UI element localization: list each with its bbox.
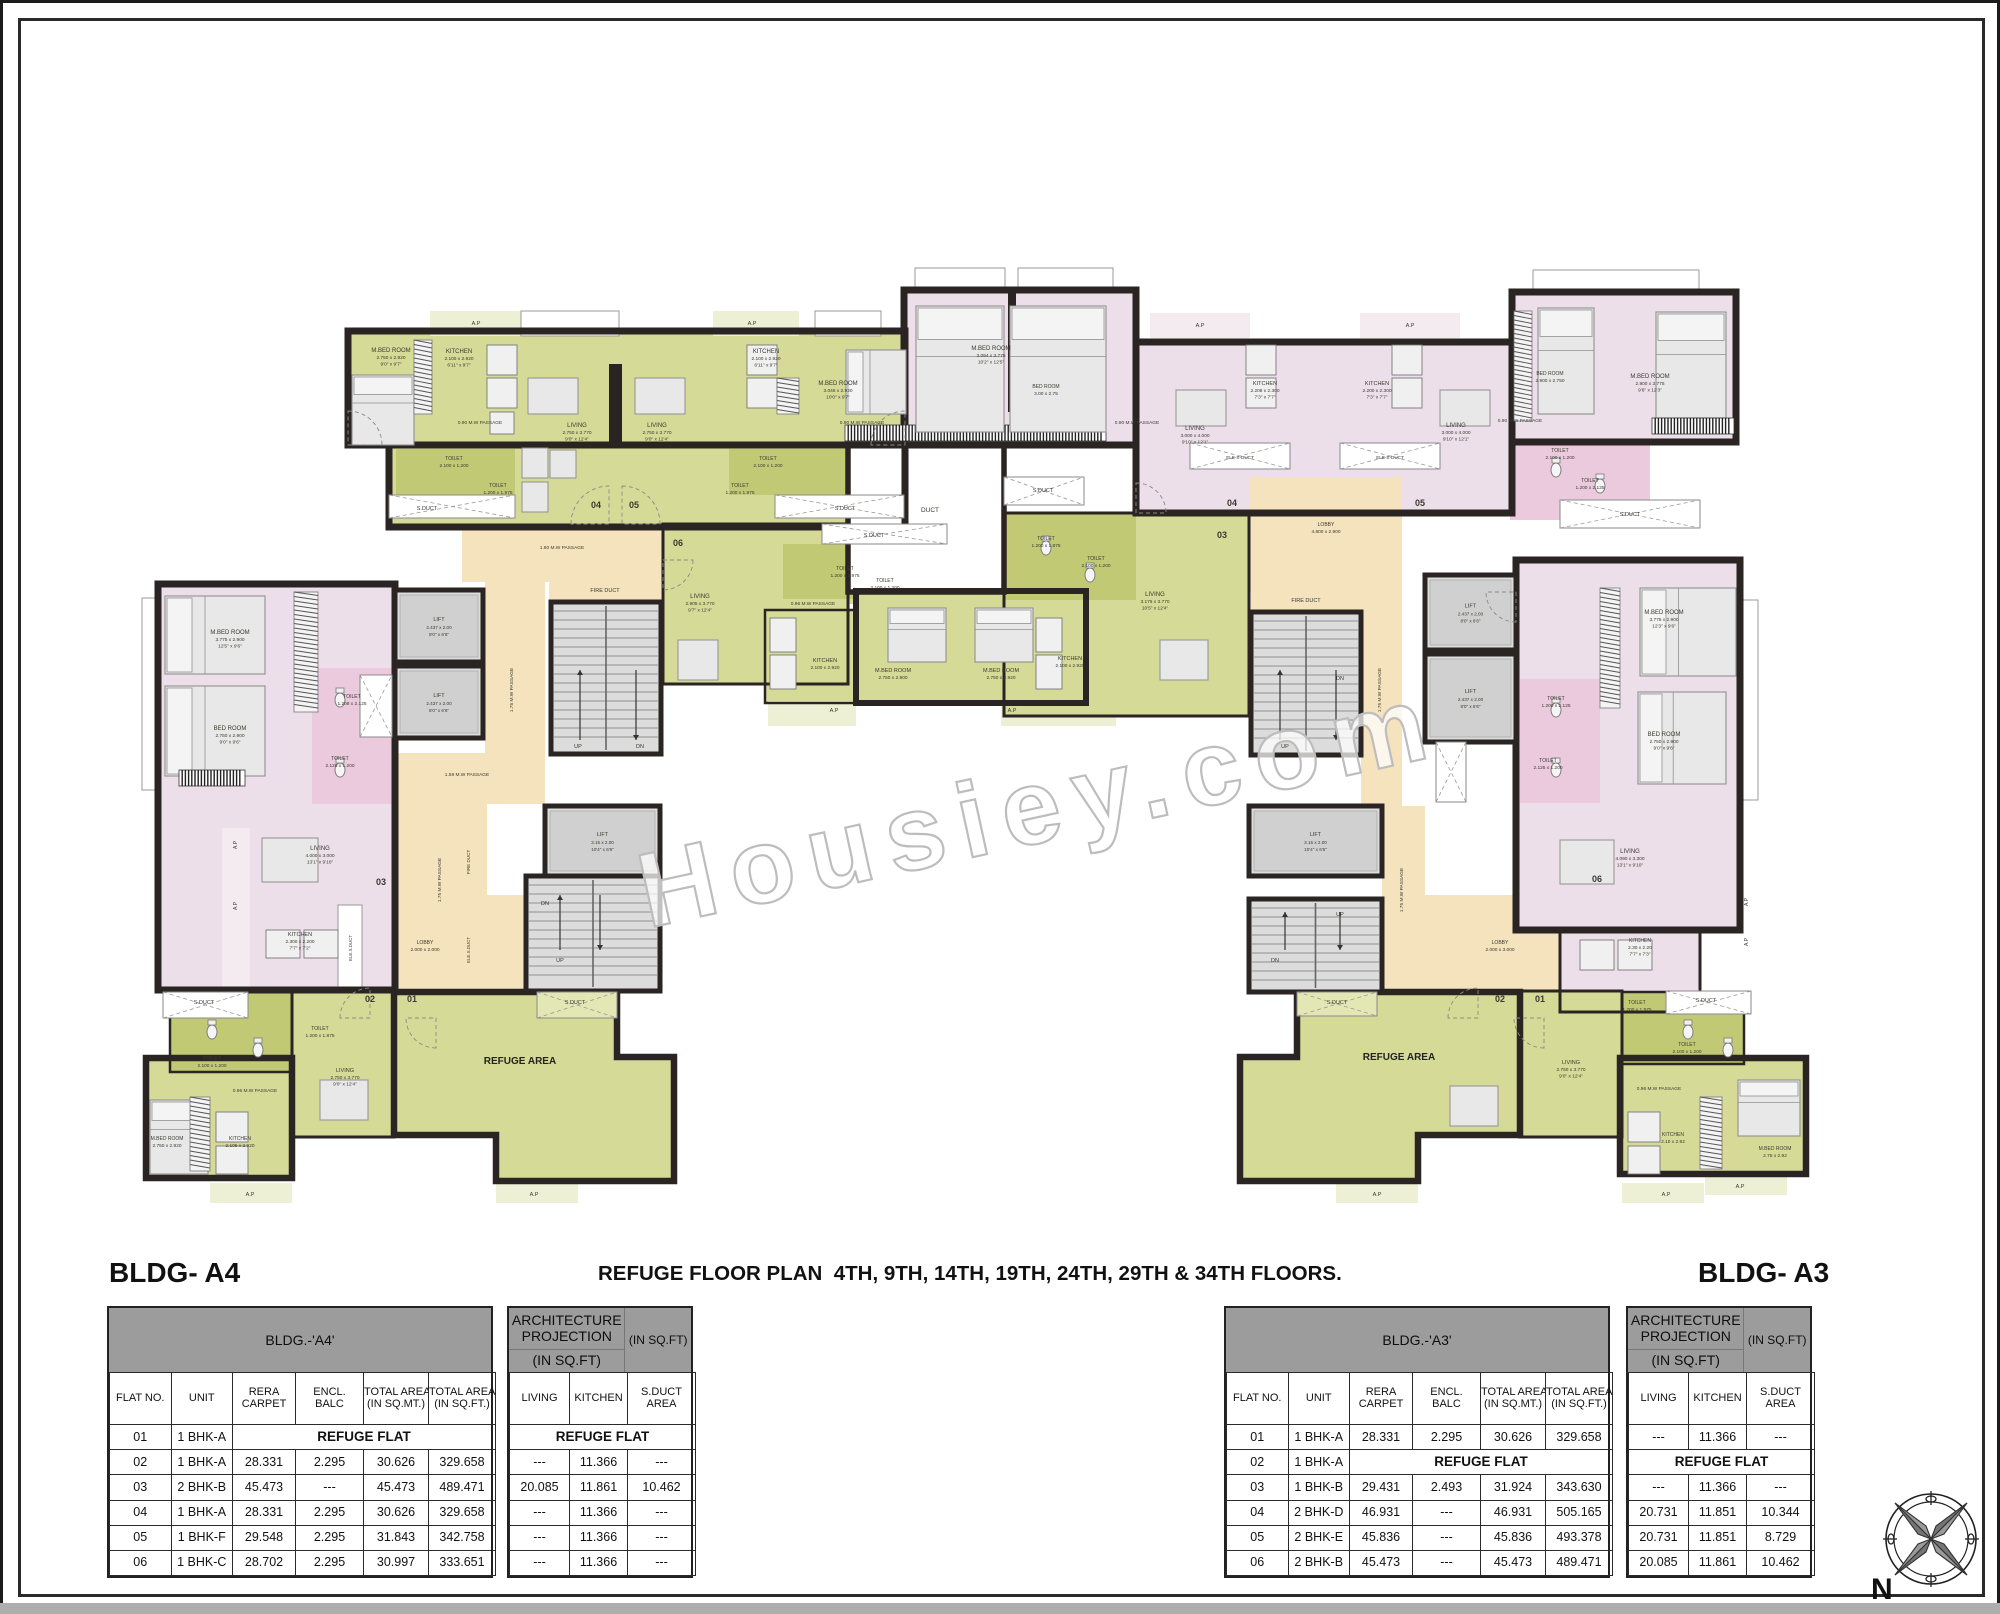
svg-text:8'0" x 6'6": 8'0" x 6'6" <box>429 632 449 637</box>
svg-text:9'6" x 12'3": 9'6" x 12'3" <box>1638 388 1662 394</box>
svg-text:3.775 x 2.900: 3.775 x 2.900 <box>215 637 244 643</box>
svg-text:0.90 M.W PASSAGE: 0.90 M.W PASSAGE <box>1498 418 1542 424</box>
svg-text:7'3" x 7'7": 7'3" x 7'7" <box>1367 395 1388 401</box>
svg-text:M.BED ROOM: M.BED ROOM <box>818 381 857 387</box>
svg-text:LIVING: LIVING <box>647 423 667 429</box>
svg-text:2.100 x 1.200: 2.100 x 1.200 <box>439 463 468 469</box>
svg-text:06: 06 <box>673 538 683 548</box>
svg-text:LIFT: LIFT <box>433 693 445 699</box>
svg-text:3.175 x 3.770: 3.175 x 3.770 <box>1140 599 1169 605</box>
svg-text:UP: UP <box>1336 912 1344 918</box>
svg-text:TOILET: TOILET <box>311 1026 328 1032</box>
svg-text:3.046 x 2.920: 3.046 x 2.920 <box>823 388 852 394</box>
svg-text:2.437 x 2.00: 2.437 x 2.00 <box>1458 612 1484 617</box>
svg-text:2.100 x 1.200: 2.100 x 1.200 <box>870 585 899 591</box>
svg-text:9'0" x 12'4": 9'0" x 12'4" <box>1559 1074 1583 1080</box>
svg-text:1.75 M.W PASSAGE: 1.75 M.W PASSAGE <box>509 668 515 712</box>
svg-text:LIVING: LIVING <box>1446 423 1466 429</box>
svg-text:9'10" x 12'1": 9'10" x 12'1" <box>1443 437 1470 443</box>
svg-text:0.90 M.W PASSAGE: 0.90 M.W PASSAGE <box>1115 420 1159 426</box>
svg-text:2.100 x 2.920: 2.100 x 2.920 <box>751 356 780 362</box>
svg-text:2.100 x 2.920: 2.100 x 2.920 <box>1055 663 1084 669</box>
svg-text:2.750 x 3.770: 2.750 x 3.770 <box>1556 1067 1585 1073</box>
svg-text:2.208 x 2.300: 2.208 x 2.300 <box>1250 388 1279 394</box>
svg-text:1.75 M.W PASSAGE: 1.75 M.W PASSAGE <box>1399 868 1405 912</box>
svg-text:DN: DN <box>541 901 549 907</box>
svg-text:FIRE DUCT: FIRE DUCT <box>590 588 620 594</box>
svg-text:LIVING: LIVING <box>1145 592 1165 598</box>
svg-text:2.000 x 2.000: 2.000 x 2.000 <box>410 947 439 953</box>
svg-text:S.DUCT: S.DUCT <box>864 533 885 539</box>
svg-text:KITCHEN: KITCHEN <box>813 658 837 664</box>
svg-text:A.P: A.P <box>1736 1184 1745 1190</box>
svg-text:S.DUCT: S.DUCT <box>194 1000 215 1006</box>
svg-text:10'5" x 12'4": 10'5" x 12'4" <box>1142 606 1169 612</box>
svg-text:6'11" x 9'7": 6'11" x 9'7" <box>754 363 778 369</box>
svg-text:2.100 x 1.200: 2.100 x 1.200 <box>753 463 782 469</box>
svg-text:6'11" x 9'7": 6'11" x 9'7" <box>447 363 471 369</box>
svg-text:3.00 x 2.75: 3.00 x 2.75 <box>1034 391 1058 397</box>
svg-text:9'0" x 9'6": 9'0" x 9'6" <box>1654 746 1675 752</box>
svg-text:LIVING: LIVING <box>567 423 587 429</box>
svg-text:N: N <box>1871 1573 1893 1606</box>
svg-text:12'3" x 9'6": 12'3" x 9'6" <box>1652 624 1676 630</box>
svg-text:BED ROOM: BED ROOM <box>1536 371 1563 377</box>
svg-text:9'0" x 12'4": 9'0" x 12'4" <box>565 437 589 443</box>
svg-text:KITCHEN: KITCHEN <box>1662 1132 1684 1138</box>
svg-text:10'4" x 6'6": 10'4" x 6'6" <box>591 847 614 852</box>
svg-text:UP: UP <box>574 744 582 750</box>
svg-text:03: 03 <box>376 877 386 887</box>
svg-text:12'5" x 9'6": 12'5" x 9'6" <box>218 644 242 650</box>
svg-text:05: 05 <box>1415 498 1425 508</box>
svg-text:M.BED ROOM: M.BED ROOM <box>210 630 249 636</box>
svg-text:2.300 x 2.200: 2.300 x 2.200 <box>285 939 314 945</box>
svg-text:01: 01 <box>407 994 417 1004</box>
svg-text:UP: UP <box>556 958 564 964</box>
svg-text:A.P: A.P <box>1662 1192 1671 1198</box>
svg-text:10'4" x 6'6": 10'4" x 6'6" <box>1304 847 1327 852</box>
svg-text:TOILET: TOILET <box>1551 448 1568 454</box>
svg-text:9'0" x 9'7": 9'0" x 9'7" <box>381 362 402 368</box>
svg-text:TOILET: TOILET <box>1087 556 1104 562</box>
svg-text:A.P: A.P <box>1196 323 1205 329</box>
svg-text:2.100 x 1.200: 2.100 x 1.200 <box>197 1063 226 1069</box>
svg-text:S.DUCT: S.DUCT <box>565 1000 586 1006</box>
svg-text:9'7" x 12'4": 9'7" x 12'4" <box>688 608 712 614</box>
svg-text:A.P: A.P <box>1373 1192 1382 1198</box>
svg-text:0.96 M.W PASSAGE: 0.96 M.W PASSAGE <box>233 1088 277 1094</box>
svg-text:M.BED ROOM: M.BED ROOM <box>371 348 410 354</box>
svg-text:2.100 x 1.200: 2.100 x 1.200 <box>1545 455 1574 461</box>
svg-text:KITCHEN: KITCHEN <box>1365 381 1389 387</box>
svg-text:02: 02 <box>1495 994 1505 1004</box>
svg-text:2.125 x 1.200: 2.125 x 1.200 <box>325 763 354 769</box>
svg-text:2.437 x 2.00: 2.437 x 2.00 <box>426 701 452 706</box>
svg-text:05: 05 <box>629 500 639 510</box>
svg-text:A.P: A.P <box>1406 323 1415 329</box>
svg-text:2.000 x 3.000: 2.000 x 3.000 <box>1485 947 1514 953</box>
svg-text:2.750 x 2.920: 2.750 x 2.920 <box>376 355 405 361</box>
svg-text:04: 04 <box>1227 498 1237 508</box>
svg-text:9'10" x 12'1": 9'10" x 12'1" <box>1182 440 1209 446</box>
svg-text:8'0" x 6'6": 8'0" x 6'6" <box>1460 704 1480 709</box>
svg-text:TOILET: TOILET <box>489 483 506 489</box>
svg-text:TOILET: TOILET <box>1628 1000 1645 1006</box>
svg-text:TOILET: TOILET <box>759 456 776 462</box>
svg-text:M.BED ROOM: M.BED ROOM <box>1759 1146 1792 1152</box>
svg-text:REFUGE AREA: REFUGE AREA <box>484 1056 556 1067</box>
svg-text:2.105 x 2.920: 2.105 x 2.920 <box>225 1143 254 1149</box>
svg-text:S.DUCT: S.DUCT <box>1033 488 1054 494</box>
svg-text:ELE.S.DUCT: ELE.S.DUCT <box>348 935 353 961</box>
svg-text:LIFT: LIFT <box>1465 689 1477 695</box>
svg-text:1.200 x 1.875: 1.200 x 1.875 <box>305 1033 334 1039</box>
svg-text:2.437 x 2.00: 2.437 x 2.00 <box>1458 697 1484 702</box>
svg-text:TOILET: TOILET <box>445 456 462 462</box>
svg-text:TOILET: TOILET <box>836 566 853 572</box>
svg-text:M.BED ROOM: M.BED ROOM <box>1644 610 1683 616</box>
svg-text:LIFT: LIFT <box>597 832 609 838</box>
svg-text:A.P: A.P <box>233 840 239 849</box>
svg-text:1.75 M.W PASSAGE: 1.75 M.W PASSAGE <box>437 858 443 902</box>
svg-text:1.200 x 1.975: 1.200 x 1.975 <box>1622 1007 1651 1013</box>
svg-text:2.125 x 1.200: 2.125 x 1.200 <box>1533 765 1562 771</box>
svg-text:3.15 x 2.00: 3.15 x 2.00 <box>591 840 614 845</box>
svg-text:A.P: A.P <box>1008 708 1017 714</box>
svg-text:S.DUCT: S.DUCT <box>1327 1000 1348 1006</box>
svg-text:TOILET: TOILET <box>331 756 348 762</box>
svg-text:A.P: A.P <box>233 901 239 910</box>
svg-text:KITCHEN: KITCHEN <box>753 349 779 355</box>
svg-text:ELE-S-DUCT: ELE-S-DUCT <box>1226 455 1254 460</box>
svg-text:2.30 x 2.20: 2.30 x 2.20 <box>1628 945 1652 951</box>
svg-text:10'2" x 12'5": 10'2" x 12'5" <box>978 360 1005 366</box>
svg-text:2.750 x 3.770: 2.750 x 3.770 <box>642 430 671 436</box>
svg-text:LIVING: LIVING <box>336 1068 354 1074</box>
svg-text:TOILET: TOILET <box>876 578 893 584</box>
svg-text:ELE.S.DUCT: ELE.S.DUCT <box>466 937 471 963</box>
svg-text:8'0" x 6'6": 8'0" x 6'6" <box>429 708 449 713</box>
svg-text:LIVING: LIVING <box>1620 849 1640 855</box>
svg-text:TOILET: TOILET <box>1539 758 1556 764</box>
svg-text:KITCHEN: KITCHEN <box>229 1136 251 1142</box>
svg-text:BED ROOM: BED ROOM <box>1648 732 1681 738</box>
svg-text:A.P: A.P <box>246 1192 255 1198</box>
svg-text:1.200 x 2.125: 1.200 x 2.125 <box>1541 703 1570 709</box>
svg-text:3.775 x 2.900: 3.775 x 2.900 <box>1649 617 1678 623</box>
svg-text:DN: DN <box>636 744 644 750</box>
svg-text:1.200 x 1.975: 1.200 x 1.975 <box>830 573 859 579</box>
svg-text:3.000 x 4.000: 3.000 x 4.000 <box>1441 430 1470 436</box>
svg-text:2.100 x 1.200: 2.100 x 1.200 <box>1672 1049 1701 1055</box>
svg-text:DN: DN <box>1271 958 1279 964</box>
svg-text:A.P: A.P <box>748 321 757 327</box>
svg-text:LOBBY: LOBBY <box>1318 522 1335 528</box>
svg-text:BED ROOM: BED ROOM <box>1032 384 1059 390</box>
svg-text:2.750 x 3.770: 2.750 x 3.770 <box>562 430 591 436</box>
svg-text:TOILET: TOILET <box>1678 1042 1695 1048</box>
svg-text:FIRE DUCT: FIRE DUCT <box>1291 598 1321 604</box>
svg-text:02: 02 <box>365 994 375 1004</box>
svg-text:A.P: A.P <box>1744 937 1750 946</box>
svg-text:10'0" x 9'7": 10'0" x 9'7" <box>826 395 850 401</box>
svg-text:2.905 x 3.770: 2.905 x 3.770 <box>685 601 714 607</box>
svg-text:2.750 x 2.920: 2.750 x 2.920 <box>986 675 1015 681</box>
svg-text:1.200 x 1.875: 1.200 x 1.875 <box>1031 543 1060 549</box>
svg-text:KITCHEN: KITCHEN <box>446 349 472 355</box>
svg-text:2.900 x 3.775: 2.900 x 3.775 <box>1635 381 1664 387</box>
svg-text:9'0" x 12'4": 9'0" x 12'4" <box>645 437 669 443</box>
svg-text:TOILET: TOILET <box>1037 536 1054 542</box>
svg-text:DUCT: DUCT <box>921 507 939 514</box>
svg-text:2.100 x 2.920: 2.100 x 2.920 <box>810 665 839 671</box>
svg-text:13'1" x 9'10": 13'1" x 9'10" <box>307 860 334 866</box>
svg-text:A.P: A.P <box>830 708 839 714</box>
svg-text:S.DUCT: S.DUCT <box>1696 998 1717 1004</box>
svg-text:KITCHEN: KITCHEN <box>1058 656 1082 662</box>
svg-text:TOILET: TOILET <box>1547 696 1564 702</box>
svg-text:1.59 M.W PASSAGE: 1.59 M.W PASSAGE <box>445 772 489 778</box>
svg-text:2.10 x 2.92: 2.10 x 2.92 <box>1661 1139 1685 1145</box>
svg-text:04: 04 <box>591 500 601 510</box>
svg-text:0.96 M.W PASSAGE: 0.96 M.W PASSAGE <box>1637 1086 1681 1092</box>
svg-text:3.000 x 4.000: 3.000 x 4.000 <box>1180 433 1209 439</box>
svg-text:A.P: A.P <box>1744 897 1750 906</box>
svg-text:LIFT: LIFT <box>1465 604 1477 610</box>
svg-text:7'7" x 7'3": 7'7" x 7'3" <box>1630 952 1651 958</box>
svg-text:06: 06 <box>1592 874 1602 884</box>
svg-text:FIRE DUCT: FIRE DUCT <box>466 850 471 875</box>
svg-text:M.BED ROOM: M.BED ROOM <box>983 668 1019 674</box>
svg-text:1.208 x 2.125: 1.208 x 2.125 <box>337 701 366 707</box>
svg-text:M.BED ROOM: M.BED ROOM <box>875 668 911 674</box>
svg-text:S.DUCT: S.DUCT <box>417 506 438 512</box>
svg-text:0.90 M.W PASSAGE: 0.90 M.W PASSAGE <box>840 420 884 426</box>
svg-text:ELE-S-DUCT: ELE-S-DUCT <box>1376 455 1404 460</box>
svg-text:2.75 x 2.92: 2.75 x 2.92 <box>1763 1153 1787 1159</box>
svg-text:LIFT: LIFT <box>433 617 445 623</box>
svg-text:13'1" x 9'10": 13'1" x 9'10" <box>1617 863 1644 869</box>
svg-text:M.BED ROOM: M.BED ROOM <box>151 1136 184 1142</box>
svg-text:4.000 x 3.000: 4.000 x 3.000 <box>305 853 334 859</box>
svg-text:2.750 x 2.900: 2.750 x 2.900 <box>1649 739 1678 745</box>
svg-text:2.750 x 2.900: 2.750 x 2.900 <box>215 733 244 739</box>
svg-text:03: 03 <box>1217 530 1227 540</box>
svg-text:M.BED ROOM: M.BED ROOM <box>1630 374 1669 380</box>
svg-text:REFUGE AREA: REFUGE AREA <box>1363 1052 1435 1063</box>
svg-text:2.750 x 2.920: 2.750 x 2.920 <box>152 1143 181 1149</box>
svg-text:4.800 x 2.900: 4.800 x 2.900 <box>1311 529 1340 535</box>
svg-text:TOILET: TOILET <box>203 1056 220 1062</box>
svg-text:KITCHEN: KITCHEN <box>1629 938 1651 944</box>
svg-text:TOILET: TOILET <box>731 483 748 489</box>
svg-text:8'0" x 6'6": 8'0" x 6'6" <box>1460 619 1480 624</box>
svg-text:1.60 M.W PASSAGE: 1.60 M.W PASSAGE <box>540 545 584 551</box>
svg-text:LIVING: LIVING <box>690 594 710 600</box>
svg-text:M.BED ROOM: M.BED ROOM <box>971 346 1010 352</box>
svg-text:9'0" x 12'4": 9'0" x 12'4" <box>333 1082 357 1088</box>
svg-text:7'7" x 7'2": 7'7" x 7'2" <box>290 946 311 952</box>
svg-text:A.P: A.P <box>530 1192 539 1198</box>
svg-text:2.750 x 2.900: 2.750 x 2.900 <box>878 675 907 681</box>
svg-text:1.200 x 1.975: 1.200 x 1.975 <box>725 490 754 496</box>
svg-text:1.200 x 2.125: 1.200 x 2.125 <box>1575 485 1604 491</box>
svg-text:LIVING: LIVING <box>310 846 330 852</box>
svg-text:LOBBY: LOBBY <box>417 940 434 946</box>
svg-text:0.96 M.W PASSAGE: 0.96 M.W PASSAGE <box>791 601 835 607</box>
svg-text:01: 01 <box>1535 994 1545 1004</box>
svg-text:3.15 x 2.00: 3.15 x 2.00 <box>1304 840 1327 845</box>
svg-text:4.090 x 3.300: 4.090 x 3.300 <box>1615 856 1644 862</box>
svg-text:1.200 x 1.975: 1.200 x 1.975 <box>483 490 512 496</box>
svg-text:0.90 M.W PASSAGE: 0.90 M.W PASSAGE <box>458 420 502 426</box>
svg-text:BED ROOM: BED ROOM <box>214 726 247 732</box>
svg-text:7'3" x 7'7": 7'3" x 7'7" <box>1255 395 1276 401</box>
svg-text:LIVING: LIVING <box>1185 426 1205 432</box>
svg-text:LIFT: LIFT <box>1310 832 1322 838</box>
svg-text:2.100 x 2.920: 2.100 x 2.920 <box>444 356 473 362</box>
svg-text:2.200 x 2.300: 2.200 x 2.300 <box>1362 388 1391 394</box>
svg-text:2.100 x 1.200: 2.100 x 1.200 <box>1081 563 1110 569</box>
svg-text:S.DUCT: S.DUCT <box>1620 512 1641 518</box>
svg-text:TOILET: TOILET <box>343 694 360 700</box>
svg-text:TOILET: TOILET <box>1581 478 1598 484</box>
svg-text:2.750 x 3.770: 2.750 x 3.770 <box>330 1075 359 1081</box>
svg-text:LIVING: LIVING <box>1562 1060 1580 1066</box>
svg-text:3.094 x 3.775: 3.094 x 3.775 <box>976 353 1005 359</box>
svg-text:A.P: A.P <box>472 321 481 327</box>
svg-text:2.437 x 2.00: 2.437 x 2.00 <box>426 625 452 630</box>
svg-text:KITCHEN: KITCHEN <box>288 932 312 938</box>
svg-text:2.900 x 2.750: 2.900 x 2.750 <box>1535 378 1564 384</box>
svg-text:LOBBY: LOBBY <box>1492 940 1509 946</box>
svg-text:9'0" x 9'6": 9'0" x 9'6" <box>220 740 241 746</box>
svg-text:KITCHEN: KITCHEN <box>1253 381 1277 387</box>
svg-text:S.DUCT: S.DUCT <box>835 506 856 512</box>
